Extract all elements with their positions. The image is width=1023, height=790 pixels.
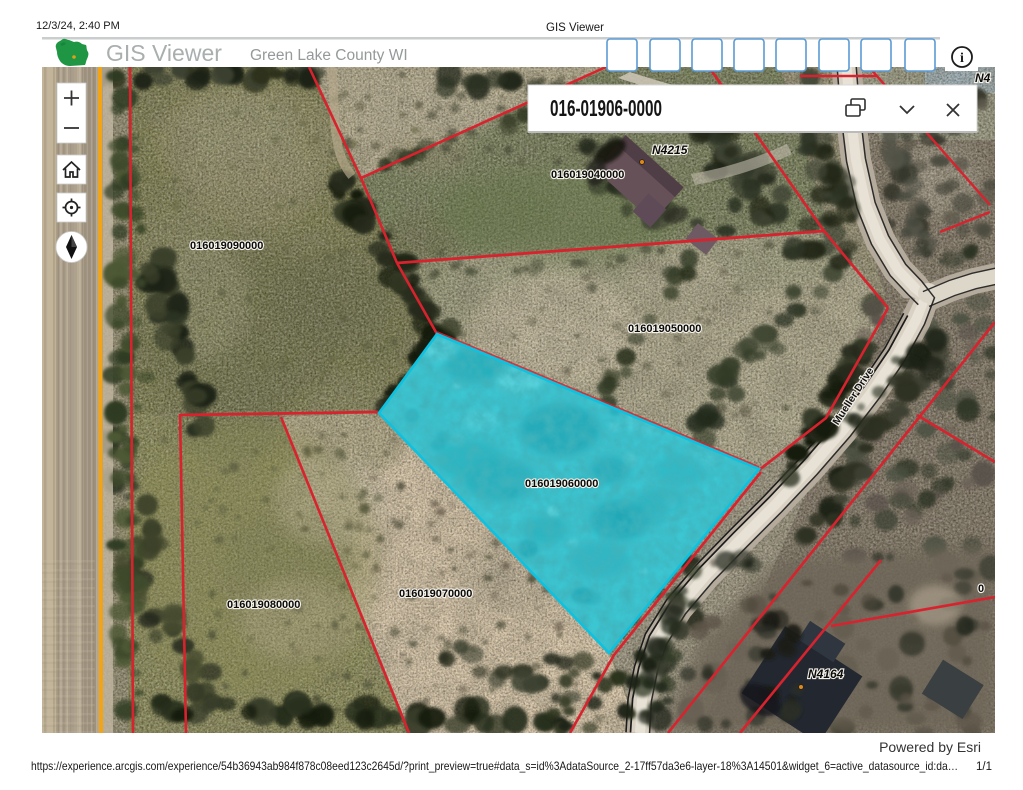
- svg-text:016019080000: 016019080000: [227, 599, 300, 611]
- svg-text:016019060000: 016019060000: [525, 478, 598, 490]
- svg-text:1/1: 1/1: [976, 761, 992, 773]
- svg-text:016019070000: 016019070000: [399, 588, 472, 600]
- svg-text:N4: N4: [975, 71, 991, 85]
- svg-text:i: i: [960, 51, 964, 66]
- svg-text:Green Lake County WI: Green Lake County WI: [250, 47, 408, 64]
- svg-text:016019050000: 016019050000: [628, 323, 701, 335]
- svg-text:https://experience.arcgis.com/: https://experience.arcgis.com/experience…: [31, 760, 958, 773]
- svg-text:GIS Viewer: GIS Viewer: [106, 40, 222, 66]
- svg-text:016-01906-0000: 016-01906-0000: [550, 95, 662, 121]
- svg-text:016019090000: 016019090000: [190, 240, 263, 252]
- svg-text:N4164: N4164: [808, 667, 844, 681]
- svg-text:GIS Viewer: GIS Viewer: [546, 22, 604, 34]
- svg-text:0: 0: [978, 583, 984, 595]
- svg-text:016019040000: 016019040000: [551, 169, 624, 181]
- svg-text:12/3/24, 2:40 PM: 12/3/24, 2:40 PM: [36, 20, 120, 32]
- svg-text:N4215: N4215: [652, 143, 688, 157]
- svg-text:Powered by Esri: Powered by Esri: [879, 739, 981, 755]
